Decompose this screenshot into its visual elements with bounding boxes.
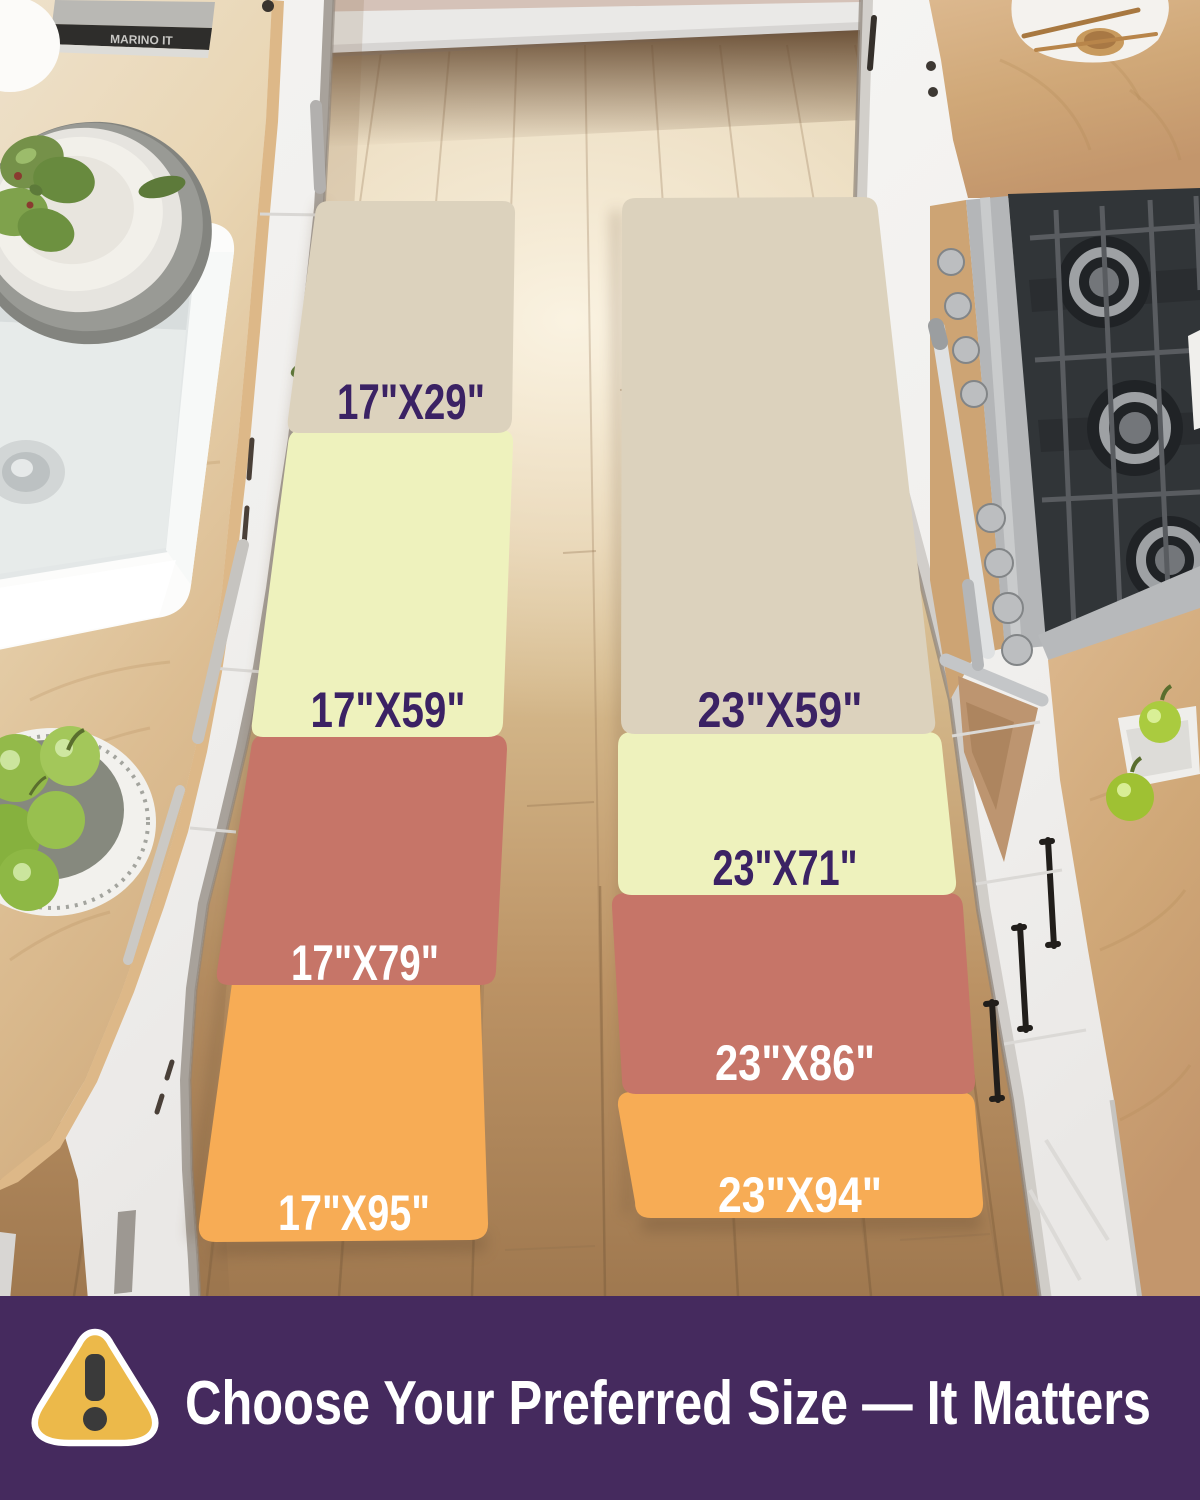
svg-text:23"X86": 23"X86" (715, 1035, 875, 1091)
svg-text:23"X71": 23"X71" (713, 840, 858, 896)
svg-text:MARINO IT: MARINO IT (110, 32, 174, 48)
svg-text:23"X59": 23"X59" (698, 682, 863, 738)
svg-text:Choose Your Preferred Size — I: Choose Your Preferred Size — It Matters (185, 1369, 1151, 1438)
svg-text:23"X94": 23"X94" (718, 1167, 882, 1223)
svg-text:17"X59": 17"X59" (311, 682, 466, 738)
svg-text:17"X29": 17"X29" (337, 374, 485, 430)
svg-text:17"X95": 17"X95" (278, 1185, 430, 1241)
svg-text:17"X79": 17"X79" (291, 935, 439, 991)
